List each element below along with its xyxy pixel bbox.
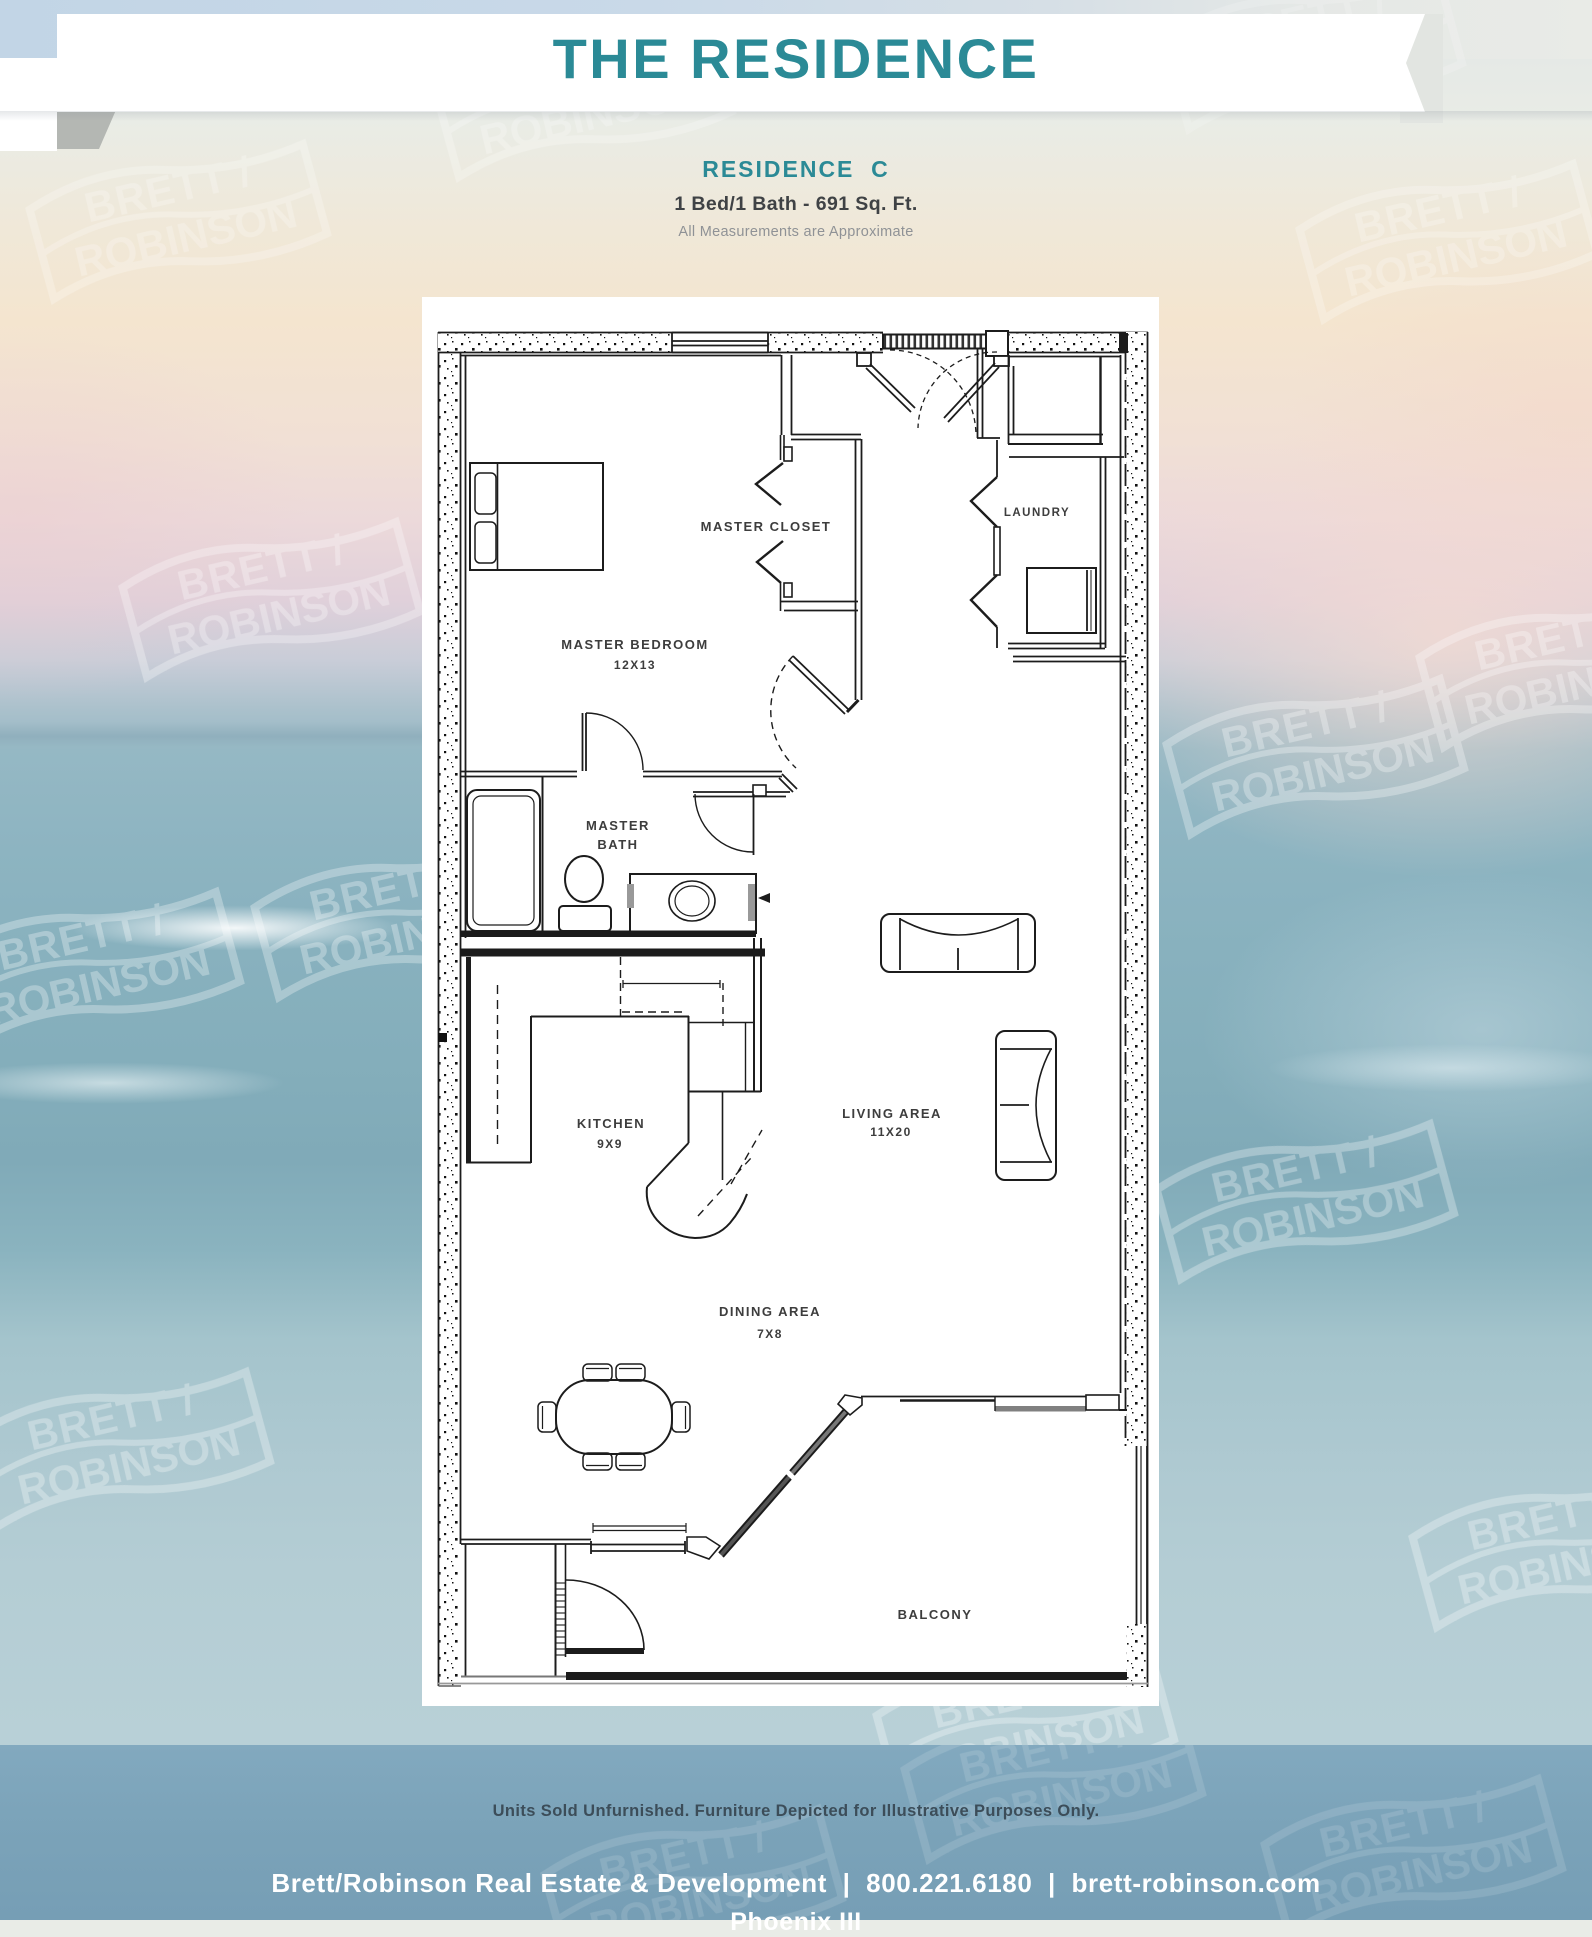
svg-text:7X8: 7X8 — [757, 1327, 783, 1341]
svg-text:12X13: 12X13 — [614, 658, 656, 672]
svg-text:MASTER BEDROOM: MASTER BEDROOM — [561, 637, 708, 652]
svg-text:DINING AREA: DINING AREA — [719, 1304, 821, 1319]
svg-text:MASTER CLOSET: MASTER CLOSET — [701, 519, 832, 534]
svg-text:LAUNDRY: LAUNDRY — [1004, 507, 1070, 519]
svg-text:KITCHEN: KITCHEN — [577, 1116, 645, 1131]
svg-text:MASTER: MASTER — [586, 818, 650, 833]
svg-text:9X9: 9X9 — [597, 1137, 623, 1151]
svg-text:BALCONY: BALCONY — [898, 1607, 973, 1622]
svg-text:11X20: 11X20 — [870, 1125, 912, 1139]
svg-text:LIVING AREA: LIVING AREA — [842, 1106, 942, 1121]
svg-text:BATH: BATH — [597, 837, 638, 852]
